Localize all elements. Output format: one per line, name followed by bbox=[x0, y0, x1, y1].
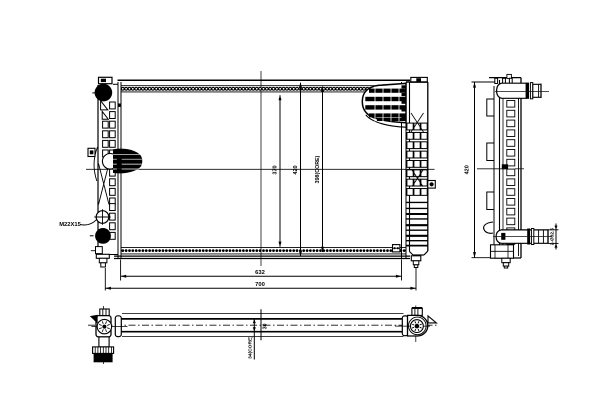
svg-text:700: 700 bbox=[255, 282, 265, 288]
svg-text:420: 420 bbox=[465, 165, 471, 174]
svg-text:420: 420 bbox=[293, 165, 299, 174]
svg-text:398(CORE): 398(CORE) bbox=[315, 155, 321, 183]
svg-text:2-Ø32.5: 2-Ø32.5 bbox=[549, 228, 555, 246]
svg-text:632: 632 bbox=[255, 270, 265, 276]
svg-text:M22X15: M22X15 bbox=[59, 222, 81, 228]
svg-text:370: 370 bbox=[273, 165, 279, 174]
svg-text:30: 30 bbox=[262, 323, 268, 329]
svg-text:34(CORE): 34(CORE) bbox=[248, 336, 254, 359]
